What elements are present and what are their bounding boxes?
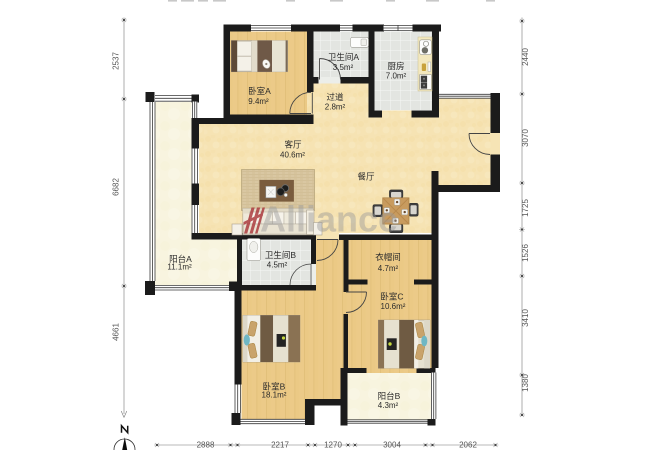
svg-text:Alliance: Alliance <box>260 199 398 240</box>
svg-text:2062: 2062 <box>459 441 477 450</box>
svg-text:3.5m²: 3.5m² <box>333 63 354 72</box>
svg-text:10.6m²: 10.6m² <box>381 302 406 311</box>
svg-text:2217: 2217 <box>271 441 289 450</box>
svg-text:9.4m²: 9.4m² <box>248 97 269 106</box>
svg-text:1270: 1270 <box>324 441 342 450</box>
svg-text:餐厅: 餐厅 <box>357 172 375 182</box>
svg-text:厨房: 厨房 <box>387 61 404 71</box>
svg-text:卧室A: 卧室A <box>248 86 271 96</box>
svg-text:卧室C: 卧室C <box>380 292 403 302</box>
svg-text:3004: 3004 <box>383 441 401 450</box>
svg-text:卫生间B: 卫生间B <box>265 250 297 260</box>
svg-text:4661: 4661 <box>112 323 121 341</box>
svg-text:1526: 1526 <box>521 244 530 262</box>
svg-text:7.0m²: 7.0m² <box>386 72 407 81</box>
svg-text:衣帽间: 衣帽间 <box>375 252 401 262</box>
svg-text:过道: 过道 <box>326 92 344 102</box>
svg-text:4.7m²: 4.7m² <box>378 264 399 273</box>
svg-text:阳台B: 阳台B <box>378 391 401 401</box>
svg-text:4.5m²: 4.5m² <box>267 261 288 270</box>
svg-text:40.6m²: 40.6m² <box>280 151 305 160</box>
svg-text:2440: 2440 <box>521 48 530 66</box>
svg-text:2888: 2888 <box>197 441 215 450</box>
svg-text:1725: 1725 <box>521 199 530 217</box>
svg-text:4.3m²: 4.3m² <box>378 401 399 410</box>
svg-text:2.8m²: 2.8m² <box>325 103 346 112</box>
svg-text:3410: 3410 <box>521 309 530 327</box>
svg-text:客厅: 客厅 <box>284 140 302 150</box>
svg-text:11.1m²: 11.1m² <box>167 263 192 272</box>
svg-text:18.1m²: 18.1m² <box>262 391 287 400</box>
svg-text:3070: 3070 <box>521 129 530 147</box>
svg-text:1380: 1380 <box>521 374 530 392</box>
svg-text:卫生间A: 卫生间A <box>328 52 360 62</box>
svg-text:2537: 2537 <box>112 52 121 70</box>
svg-text:6682: 6682 <box>112 178 121 196</box>
